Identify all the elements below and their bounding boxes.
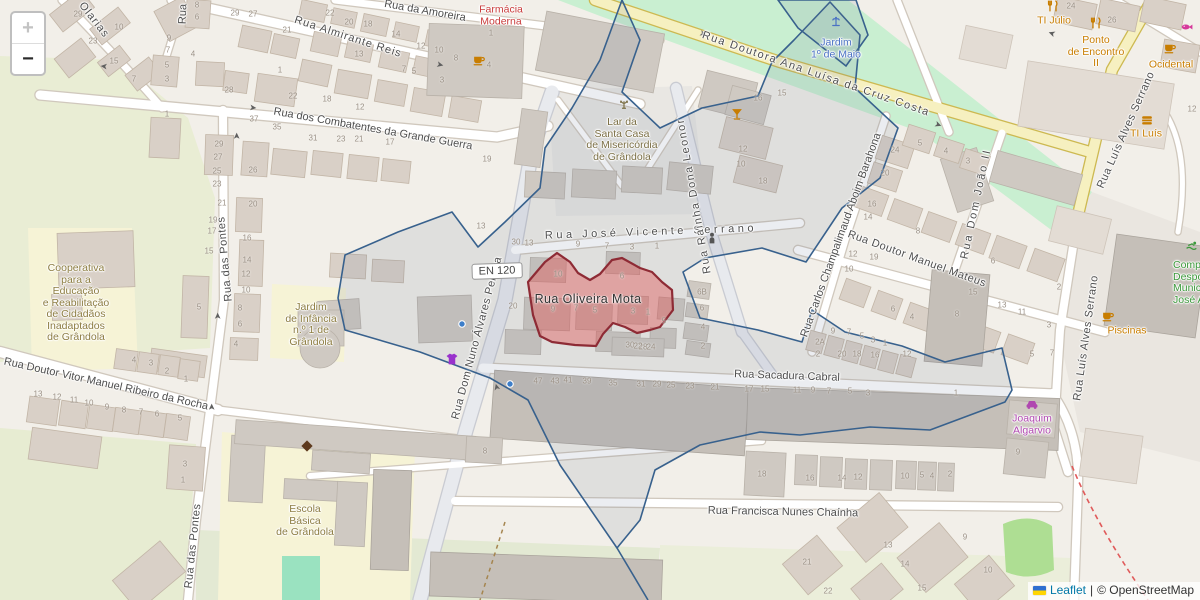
house-number: 5 <box>165 61 169 70</box>
house-number: 23 <box>686 382 695 391</box>
map-canvas[interactable]: Rua da AmoreiraRua Almirante ReisRua dos… <box>0 0 1200 600</box>
house-number: 10 <box>845 265 854 274</box>
house-number: 6 <box>991 257 995 266</box>
house-number: 16 <box>754 94 763 103</box>
house-number: 12 <box>903 350 912 359</box>
house-number: 9 <box>105 403 109 412</box>
house-number: 5 <box>1030 350 1034 359</box>
house-number: 1 <box>278 66 282 75</box>
house-number: 35 <box>609 379 618 388</box>
house-number: 25 <box>667 381 676 390</box>
house-number: 9 <box>1016 448 1020 457</box>
house-number: 29 <box>215 140 224 149</box>
diamond-icon <box>301 440 314 453</box>
house-number: 21 <box>711 383 720 392</box>
shirt-icon <box>446 353 459 366</box>
house-number: 5 <box>412 67 416 76</box>
poi-label-jardim-1-maio: Jardim1º de Maio <box>811 38 861 61</box>
house-number: 7 <box>139 408 143 417</box>
house-number: 4 <box>910 313 914 322</box>
road-ref-shield: EN 120 <box>471 262 522 280</box>
house-number: 15 <box>110 57 119 66</box>
house-number: 21 <box>355 135 364 144</box>
poi-label-ocidental: Ocidental <box>1149 59 1193 71</box>
house-number: 20 <box>881 169 890 178</box>
house-number: 12 <box>849 250 858 259</box>
house-number: 9 <box>811 386 815 395</box>
house-number: 18 <box>323 95 332 104</box>
house-number: 5 <box>197 303 201 312</box>
house-number: 2 <box>701 342 705 351</box>
house-number: 6 <box>620 272 624 281</box>
house-number: 5 <box>593 306 597 315</box>
house-number: 12 <box>854 473 863 482</box>
poi-label-ti-luis: TI Luís <box>1130 128 1162 140</box>
house-number: 10 <box>901 472 910 481</box>
house-number: 29 <box>231 9 240 18</box>
house-number: 16 <box>806 474 815 483</box>
house-number: 4 <box>487 61 491 70</box>
burger-icon <box>1141 114 1154 127</box>
oneway-arrow-icon: ➤ <box>100 60 109 72</box>
house-number: 11 <box>70 396 78 405</box>
cafe-icon <box>1102 310 1115 323</box>
house-number: 27 <box>214 153 223 162</box>
house-number: 1 <box>489 29 493 38</box>
house-number: 6B <box>697 288 707 297</box>
poi-label-ponto-de-encontro: Pontode EncontroII <box>1068 35 1125 70</box>
house-number: 13 <box>525 239 534 248</box>
house-number: 7 <box>132 75 136 84</box>
poi-label-jardim-infancia: Jardimde Infâncian.º 1 deGrândola <box>285 302 336 348</box>
house-number: 18 <box>758 470 767 479</box>
house-number: 6 <box>238 320 242 329</box>
house-number: 2 <box>948 470 952 479</box>
house-number: 2 <box>165 367 169 376</box>
house-number: 11 <box>793 386 801 395</box>
house-number: 1 <box>165 110 169 119</box>
house-number: 7 <box>1050 349 1054 358</box>
house-number: 31 <box>637 380 646 389</box>
house-number: 3 <box>631 307 635 316</box>
cocktail-icon <box>731 108 744 121</box>
poi-label-lar-santa-casa: Lar daSanta Casade Misericórdiade Grândo… <box>586 117 657 163</box>
house-number: 22 <box>326 9 335 18</box>
house-number: 24 <box>647 343 656 352</box>
house-number: 39 <box>583 377 592 386</box>
house-number: 14 <box>864 213 873 222</box>
house-number: 18 <box>853 350 862 359</box>
house-number: 4 <box>944 147 948 156</box>
house-number: 22 <box>289 92 298 101</box>
ukraine-flag-icon <box>1033 586 1046 595</box>
house-number: 3 <box>183 460 187 469</box>
house-number: 6 <box>891 305 895 314</box>
house-number: 17 <box>745 385 754 394</box>
house-number: 3 <box>630 243 634 252</box>
house-number: 8 <box>454 54 458 63</box>
house-number: 26 <box>1108 16 1117 25</box>
house-number: 37 <box>250 115 259 124</box>
fountain-icon <box>830 16 843 29</box>
house-number: 4 <box>701 323 705 332</box>
house-number: 41 <box>564 376 573 385</box>
house-number: 4 <box>234 340 238 349</box>
house-number: 7 <box>605 242 609 251</box>
house-number: 12 <box>356 103 365 112</box>
house-number: 5 <box>178 414 182 423</box>
house-number: 17 <box>386 138 395 147</box>
house-number: 20 <box>345 18 354 27</box>
house-number: 24 <box>1067 2 1076 11</box>
house-number: 23 <box>89 37 98 46</box>
house-number: 10 <box>242 286 251 295</box>
house-number: 5 <box>662 317 666 326</box>
path-dashed-red <box>1072 466 1148 600</box>
house-number: 25 <box>213 167 222 176</box>
house-number: 3 <box>149 359 153 368</box>
car-icon <box>1026 398 1039 411</box>
poi-label-complexo-desportivo: ComplexoDesportivoMunicipalJosé Afonso <box>1173 260 1200 306</box>
house-number: 1 <box>181 476 185 485</box>
poi-label-farmacia-moderna: FarmáciaModerna <box>479 5 523 28</box>
house-number: 12 <box>242 270 251 279</box>
house-number: 5 <box>920 471 924 480</box>
house-number: 3 <box>966 157 970 166</box>
house-number: 7 <box>847 328 851 337</box>
house-number: 13 <box>998 301 1007 310</box>
house-number: 4 <box>930 472 934 481</box>
house-number: 31 <box>309 134 318 143</box>
house-number: 5 <box>918 139 922 148</box>
house-number: 14 <box>392 30 401 39</box>
house-number: 1 <box>883 339 887 348</box>
highlighted-street-label: Rua Oliveira Mota <box>535 292 642 306</box>
house-number: 7 <box>827 387 831 396</box>
house-number: 1 <box>954 389 958 398</box>
house-number: 4 <box>191 50 195 59</box>
house-number: 12 <box>53 393 62 402</box>
swim-icon <box>1186 240 1199 253</box>
house-number: 9 <box>167 34 171 43</box>
house-number: 19 <box>870 253 879 262</box>
house-number: 4 <box>132 356 136 365</box>
cutlery-icon <box>1047 0 1060 13</box>
house-number: 21 <box>218 199 227 208</box>
house-number: 1 <box>655 242 659 251</box>
house-number: 10 <box>115 23 124 32</box>
house-number: 20 <box>838 350 847 359</box>
house-number: 15 <box>761 385 770 394</box>
house-number: 13 <box>34 390 43 399</box>
cutlery-icon <box>1090 17 1103 30</box>
house-number: 18 <box>759 177 768 186</box>
house-number: 16 <box>868 200 877 209</box>
house-number: 8 <box>195 1 199 10</box>
house-number: 10 <box>85 399 94 408</box>
oneway-arrow-icon: ➤ <box>213 312 224 320</box>
house-number: 14 <box>838 474 847 483</box>
attribution-separator: | <box>1090 583 1093 597</box>
poi-label-cooperativa: Cooperativapara aEducaçãoe Reabilitaçãod… <box>43 263 110 344</box>
house-number: 7 <box>402 65 406 74</box>
openstreetmap-link[interactable]: © OpenStreetMap <box>1097 583 1194 597</box>
attribution-bar: Leaflet | © OpenStreetMap <box>1028 582 1200 600</box>
zoom-control[interactable]: + − <box>10 11 46 76</box>
house-number: 3 <box>1047 321 1051 330</box>
house-number: 21 <box>283 26 292 35</box>
house-number: 19 <box>483 155 492 164</box>
house-number: 23 <box>337 135 346 144</box>
house-number: 2A <box>815 338 825 347</box>
oneway-arrow-icon: ➤ <box>232 132 243 140</box>
dot-icon <box>456 318 469 331</box>
cafe-icon <box>1164 42 1177 55</box>
house-number: 6 <box>155 410 159 419</box>
house-number: 15 <box>918 584 927 593</box>
house-number: 23 <box>213 180 222 189</box>
house-number: 10 <box>737 160 746 169</box>
house-number: 10 <box>984 566 993 575</box>
house-number: 9 <box>831 327 835 336</box>
house-number: 22 <box>634 342 643 351</box>
house-number: 3 <box>165 75 169 84</box>
house-number: 14 <box>243 256 252 265</box>
house-number: 16 <box>243 234 252 243</box>
oneway-arrow-icon: ➤ <box>249 102 258 114</box>
house-number: 8 <box>955 310 959 319</box>
house-number: 17 <box>208 227 217 236</box>
house-number: 1 <box>646 308 650 317</box>
house-number: 8 <box>916 227 920 236</box>
house-number: 10 <box>435 46 444 55</box>
house-number: 21 <box>803 558 812 567</box>
house-number: 2 <box>816 350 820 359</box>
house-number: 5 <box>848 387 852 396</box>
house-number: 29 <box>653 380 662 389</box>
house-number: 30 <box>512 238 521 247</box>
house-number: 6 <box>195 13 199 22</box>
house-number: 20 <box>509 302 518 311</box>
house-number: 13 <box>355 50 364 59</box>
house-number: 20 <box>249 200 258 209</box>
house-number: 35 <box>273 123 282 132</box>
house-number: 18 <box>364 20 373 29</box>
house-number: 43 <box>551 377 560 386</box>
house-number: 22 <box>824 587 833 596</box>
house-number: 3 <box>871 336 875 345</box>
house-number: 8 <box>238 304 242 313</box>
poi-label-joaquim-algarvio: JoaquimAlgarvio <box>1012 414 1052 437</box>
house-number: 12 <box>1188 105 1197 114</box>
poi-label-piscinas: Piscinas <box>1107 325 1146 337</box>
house-number: 13 <box>884 541 893 550</box>
house-number: 28 <box>225 86 234 95</box>
house-number: 16 <box>871 351 880 360</box>
house-number: 9 <box>576 240 580 249</box>
house-number: 47 <box>534 377 543 386</box>
leaflet-link[interactable]: Leaflet <box>1050 583 1086 597</box>
emblem-icon <box>618 99 631 112</box>
statue-icon <box>706 232 719 245</box>
house-number: 15 <box>205 247 214 256</box>
house-number: 24 <box>891 146 900 155</box>
house-number: 10 <box>554 270 563 279</box>
house-number: 15 <box>969 288 978 297</box>
poi-label-escola-basica: EscolaBásicade Grândola <box>276 504 334 539</box>
street-label: Rua <box>177 4 190 25</box>
house-number: 11 <box>1018 308 1026 317</box>
dot-icon <box>504 378 517 391</box>
house-number: 5 <box>860 332 864 341</box>
house-number: 6 <box>700 304 704 313</box>
house-number: 27 <box>249 10 258 19</box>
house-number: 15 <box>778 89 787 98</box>
house-number: 13 <box>477 222 486 231</box>
house-number: 3 <box>440 76 444 85</box>
fish-icon <box>1181 21 1194 34</box>
zoom-out-button[interactable]: − <box>12 43 44 74</box>
poi-label-ti-julio: TI Júlio <box>1037 15 1071 27</box>
house-number: 12 <box>739 145 748 154</box>
house-number: 8 <box>122 406 126 415</box>
house-number: 26 <box>249 166 258 175</box>
cafe-icon <box>473 54 486 67</box>
house-number: 12 <box>417 42 426 51</box>
house-number: 7 <box>166 46 170 55</box>
house-number: 1 <box>184 375 188 384</box>
house-number: 8 <box>483 447 487 456</box>
house-number: 9 <box>963 533 967 542</box>
zoom-in-button[interactable]: + <box>12 13 44 43</box>
house-number: 2 <box>1057 283 1061 292</box>
house-number: 14 <box>901 560 910 569</box>
house-number: 3 <box>866 389 870 398</box>
